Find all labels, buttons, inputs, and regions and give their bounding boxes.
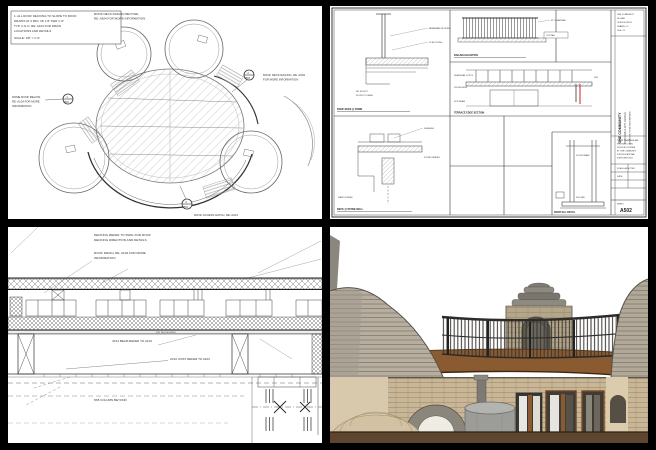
blocking-row — [10, 290, 322, 316]
panel3-caption: TERRACE EDGE SECTION — [454, 112, 485, 115]
note-line: LOCATIONS AND DETAILS — [14, 29, 51, 33]
callout-sheet: A502 — [64, 101, 70, 104]
left-note: INFORMATION — [12, 104, 31, 108]
tb-note: THESE DRAWINGS ARE — [617, 139, 639, 142]
screenshot-frame: 1. ALL ROOF DECKING TO SLOPE TO ROOF DRA… — [0, 0, 656, 450]
right-arch-window — [610, 395, 626, 423]
quadrant-roof-section: DECKING REFER TO SW01 FOR ROOF DECKING D… — [8, 227, 322, 443]
quadrant-roof-plan: 1. ALL ROOF DECKING TO SLOPE TO ROOF DRA… — [8, 6, 322, 219]
quadrant-3d-render — [330, 227, 648, 443]
panel1-ann: SLOPE TO DRAIN — [356, 94, 373, 97]
panel5-caption: DOOR SILL DETAIL — [554, 211, 576, 214]
panel-railing-elevation: 42" GUARDRAIL TOP RAIL RAILING ELEVATION — [454, 18, 568, 58]
joist-label: 2X10 JOIST REFER TO A103 — [170, 357, 210, 361]
tb-note: BY ONE COMMUNITY — [617, 151, 637, 153]
tb-note: FOR EDUCATIONAL — [617, 153, 635, 156]
adjacent-structure-arcs — [284, 96, 315, 166]
title-block: ONE COMMUNITY GLOBAL OPEN SOURCE DRAWN: … — [611, 10, 646, 215]
left-note: DOME ROOF BELOW, — [12, 95, 41, 99]
tb-scale: SCALE: AS NOTED — [617, 167, 635, 170]
beam-label: 4X12 BEAM REFER TO A103 — [112, 339, 152, 343]
panel5-ann: SILL PAN — [576, 196, 585, 199]
note-line: SCALE: 1/8" = 1'-0" — [14, 36, 40, 40]
panel3-ann: 4X12 BEAM — [454, 100, 465, 103]
tb-note: SOURCE FOR FREE — [617, 147, 636, 149]
panel5-ann: DOOR FRAME — [576, 154, 590, 157]
tb-note: PROVIDED OPEN — [617, 144, 633, 146]
panel1-caption: ROOF EDGE @ DOME — [337, 108, 363, 111]
callout-sheet: A502 — [245, 77, 251, 80]
beam-bay: 4X12 BEAM REFER TO A103 2X10 JOIST REFER… — [8, 334, 322, 377]
panel2-ann: 42" GUARDRAIL — [551, 19, 567, 22]
panel1-ann: MEMBRANE ROOFING — [429, 27, 451, 30]
panel4-caption: DECK @ STONE WALL — [337, 208, 364, 211]
panel3-ann: 2X6 DECKING — [454, 87, 468, 89]
firm-line: GLOBAL — [617, 17, 626, 20]
panel1-ann: RE: STRUCT — [356, 91, 369, 93]
project-name: ONE COMMUNITY — [618, 112, 622, 144]
drain-note: INFORMATION — [94, 256, 115, 260]
bottom-note: ROOF ACCESS HATCH, RE: A104 — [194, 213, 238, 217]
leader-lines — [11, 227, 321, 359]
firm-line: OPEN SOURCE — [617, 22, 632, 24]
panel1-ann: 2X BLOCKING — [429, 42, 443, 44]
tb-date: DATE: — [617, 175, 623, 178]
deck-strip-label: 2X6 T&G DECKING — [156, 332, 176, 334]
panel2-caption: RAILING ELEVATION — [454, 54, 478, 57]
section-annotations-top: DECKING REFER TO SW01 FOR ROOF DECKING D… — [94, 233, 151, 260]
panel-terrace-section: GUARDRAIL POSTS 2X6 DECKING 4X12 BEAM SI… — [454, 70, 598, 115]
panel4-ann: FLASHING — [424, 127, 434, 130]
firm-line: ONE COMMUNITY — [617, 14, 635, 16]
joist-ticks — [44, 374, 292, 377]
tb-note: PURPOSES ONLY. — [617, 158, 634, 160]
note-line: TYP. U.N.O. RE: A104 FOR DRAIN — [14, 24, 61, 28]
decking-note: DECKING DIRECTION AND DETAILS — [94, 238, 147, 242]
plan-fragment — [252, 377, 322, 443]
right-note: ROOF DECK RAILING, RE: A504 — [263, 73, 305, 77]
sheet-label: SHEET — [617, 204, 624, 206]
panel2-ann: TOP RAIL — [546, 34, 556, 37]
panel-door-sill: DOOR FRAME SILL PAN DOOR SILL DETAIL — [554, 140, 606, 214]
quadrant-detail-sheet: MEMBRANE ROOFING 2X BLOCKING RE: STRUCT … — [330, 6, 648, 219]
decking-note: DECKING REFER TO SW01 FOR ROOF — [94, 233, 151, 237]
callout-sheet: A502 — [183, 206, 189, 209]
panel3-ann: GUARDRAIL POSTS — [454, 74, 474, 77]
panel4-ann: WEEP SCREED — [338, 197, 353, 199]
ground-band — [330, 432, 648, 443]
panel-roof-edge-detail: MEMBRANE ROOFING 2X BLOCKING RE: STRUCT … — [337, 14, 451, 112]
drain-note: ROOF DRAIN, RE: A104 FOR MORE — [94, 251, 146, 255]
right-note: FOR MORE INFORMATION — [263, 78, 298, 82]
note-line: DRAINS AT A MIN. OF 1/4" PER 1'-0" — [14, 19, 64, 23]
project-sub: DUPLICABLE CITY CENTER — [624, 112, 627, 144]
panel-deck-stone-wall: FLASHING STONE VENEER WEEP SCREED DECK @… — [337, 127, 440, 212]
column-label: 8X8 COLUMN BEYOND — [94, 398, 128, 402]
column-beyond: 8X8 COLUMN BEYOND — [8, 377, 322, 423]
panel3-ann: SIM — [594, 77, 598, 79]
roof-deck-band — [8, 278, 322, 290]
insulation-band: 2X6 T&G DECKING — [8, 317, 322, 334]
firm-line: CHK: OC — [617, 30, 626, 32]
left-note: RE: A104 FOR MORE — [12, 100, 40, 104]
sheet-number: A502 — [620, 208, 632, 214]
top-note: RE: A504 FOR MORE INFORMATION — [94, 17, 145, 21]
top-note: ROOF DECK RAILING BEYOND, — [94, 12, 139, 16]
note-line: 1. ALL ROOF DECKING TO SLOPE TO ROOF — [14, 14, 77, 18]
panel4-ann: STONE VENEER — [424, 157, 440, 159]
firm-line: DRAWN: OC — [617, 25, 629, 28]
